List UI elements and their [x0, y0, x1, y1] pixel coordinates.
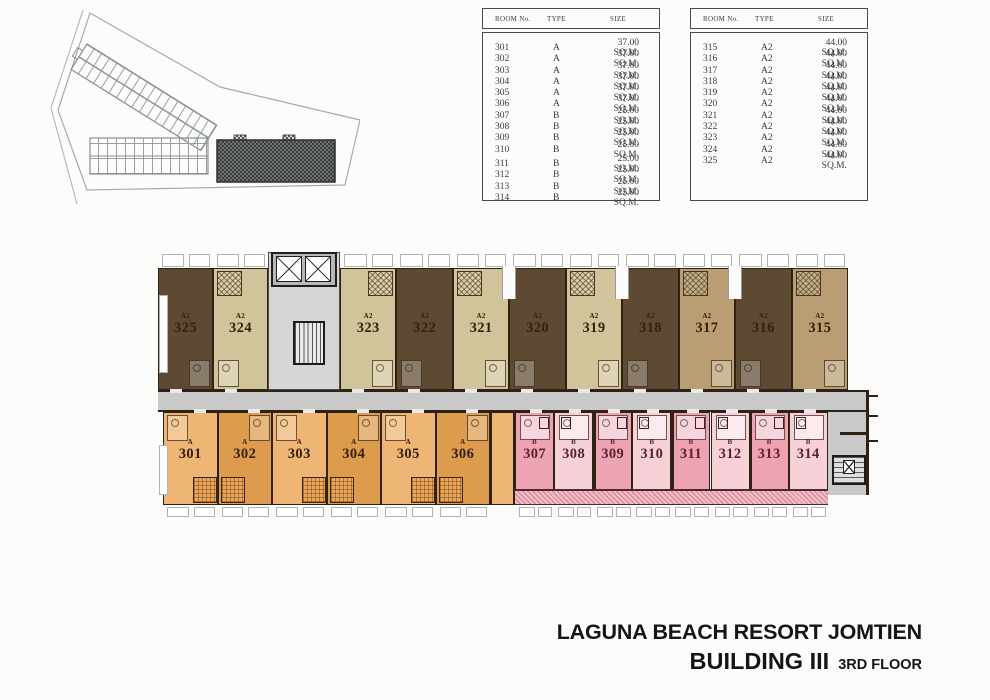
balcony-rail: [466, 507, 487, 517]
room-label-305: A305: [382, 439, 435, 462]
balcony-rail: [597, 507, 613, 517]
room-label-303: A303: [273, 439, 326, 462]
balcony-rail: [440, 507, 462, 517]
room-type: B: [633, 439, 670, 446]
room-type: B: [751, 439, 788, 446]
room-316: A2316: [735, 268, 791, 390]
room-type: A2: [214, 313, 267, 320]
cell-room: 308: [495, 122, 547, 132]
door-gap: [726, 409, 738, 413]
room-type: A2: [510, 313, 564, 320]
cell-room: 314: [495, 193, 547, 203]
room-label-307: B307: [516, 439, 553, 462]
room-number: 317: [680, 321, 734, 336]
bathroom: [276, 415, 297, 441]
shower-box: [796, 417, 806, 429]
door-gap: [225, 389, 237, 393]
cell-room: 318: [703, 77, 755, 87]
room-number: 307: [516, 447, 553, 462]
cell-room: 305: [495, 88, 547, 98]
hatch-box: [570, 271, 595, 296]
room-number: 315: [793, 321, 847, 336]
cell-type: A: [547, 99, 591, 109]
door-gap: [687, 409, 699, 413]
cell-room: 304: [495, 77, 547, 87]
header-size: SIZE: [591, 15, 659, 23]
cell-type: A: [547, 43, 591, 53]
door-gap: [412, 409, 424, 413]
balcony-rail: [626, 254, 649, 267]
room-number: 311: [672, 447, 709, 462]
door-gap: [747, 389, 759, 393]
wall-tick: [869, 415, 878, 417]
cell-size: 25.00 SQ.M.: [591, 188, 659, 208]
balcony-rail: [194, 507, 215, 517]
balcony-rail: [636, 507, 652, 517]
elevator-car-icon: [305, 256, 331, 282]
hatch-box: [217, 271, 242, 296]
balcony-rail: [824, 254, 845, 267]
stair-core-icon: [843, 460, 855, 474]
cell-type: A: [547, 66, 591, 76]
balcony-rail: [772, 507, 787, 517]
room-label-313: B313: [751, 439, 788, 462]
plan-title: LAGUNA BEACH RESORT JOMTIEN BUILDING III…: [557, 620, 922, 675]
cell-type: B: [547, 133, 591, 143]
end-wall: [866, 390, 869, 495]
room-label-315: A2315: [793, 313, 847, 336]
balcony-rail: [457, 254, 480, 267]
door-gap: [765, 409, 777, 413]
shower-box: [539, 417, 549, 429]
room-label-302: A302: [219, 439, 272, 462]
room-306: A306: [436, 412, 491, 505]
door-gap: [303, 409, 315, 413]
legend-table-1: ROOM No. TYPE SIZE 301A37.00 SQ.M.302A37…: [482, 8, 660, 201]
bathroom: [740, 360, 761, 387]
room-302: A302: [218, 412, 273, 505]
room-322: A2322: [396, 268, 452, 390]
wall-tick: [869, 395, 878, 397]
bathroom: [520, 415, 550, 440]
balcony-rail: [796, 254, 819, 267]
balcony-rail: [248, 507, 269, 517]
cell-room: 303: [495, 66, 547, 76]
room-number: 309: [594, 447, 631, 462]
end-wall-stub: [840, 432, 868, 435]
room-type: A: [382, 439, 435, 446]
cell-type: A2: [755, 99, 799, 109]
cell-room: 309: [495, 133, 547, 143]
cell-room: 323: [703, 133, 755, 143]
room-type: A2: [567, 313, 621, 320]
cell-type: A2: [755, 66, 799, 76]
room-label-306: A306: [437, 439, 490, 462]
room-type: A: [328, 439, 381, 446]
bathroom: [385, 415, 406, 441]
room-319: A2319: [566, 268, 622, 390]
room-number: 316: [736, 321, 790, 336]
room-320: A2320: [509, 268, 565, 390]
legend-table-2-body: 315A244.00 SQ.M.316A244.00 SQ.M.317A244.…: [690, 32, 868, 201]
floor-name: 3RD FLOOR: [838, 657, 922, 673]
bathroom: [189, 360, 210, 387]
room-number: 303: [273, 447, 326, 462]
balcony-rail: [428, 254, 449, 267]
header-type: TYPE: [547, 15, 591, 23]
balcony-rail: [616, 507, 631, 517]
balcony-rail: [162, 254, 184, 267]
room-number: 312: [712, 447, 749, 462]
room-number: 313: [751, 447, 788, 462]
hatch-box: [368, 271, 393, 296]
cell-room: 317: [703, 66, 755, 76]
balcony-rail: [276, 507, 298, 517]
room-301: A301: [163, 412, 218, 505]
shower-box: [718, 417, 728, 429]
bathroom: [249, 415, 270, 441]
room-label-320: A2320: [510, 313, 564, 336]
room-number: 319: [567, 321, 621, 336]
legend-table-2-header: ROOM No. TYPE SIZE: [690, 8, 868, 29]
corridor: [158, 390, 868, 412]
cell-room: 322: [703, 122, 755, 132]
balcony-rail: [655, 507, 670, 517]
room-number: 305: [382, 447, 435, 462]
cell-type: A2: [755, 133, 799, 143]
door-gap: [352, 389, 364, 393]
cell-type: A2: [755, 43, 799, 53]
bathroom: [218, 360, 239, 387]
door-gap: [530, 409, 542, 413]
cell-type: B: [547, 170, 591, 180]
room-label-317: A2317: [680, 313, 734, 336]
room-type: B: [712, 439, 749, 446]
room-number: 306: [437, 447, 490, 462]
room-number: 318: [623, 321, 677, 336]
room-315: A2315: [792, 268, 848, 390]
room-type: A: [273, 439, 326, 446]
door-gap: [608, 409, 620, 413]
room-label-321: A2321: [454, 313, 508, 336]
door-gap: [804, 409, 816, 413]
bathroom: [755, 415, 785, 440]
balcony-rail: [558, 507, 574, 517]
room-label-304: A304: [328, 439, 381, 462]
balcony-rail: [412, 507, 433, 517]
balcony-rail: [683, 254, 706, 267]
door-gap: [569, 409, 581, 413]
bathroom: [794, 415, 824, 440]
room-number: 314: [790, 447, 827, 462]
room-number: 324: [214, 321, 267, 336]
balcony-rail: [400, 254, 423, 267]
door-gap: [466, 409, 478, 413]
room-label-324: A2324: [214, 313, 267, 336]
balcony-rail: [331, 507, 353, 517]
room-305: A305: [381, 412, 436, 505]
balcony-rail: [167, 507, 189, 517]
bathroom: [711, 360, 732, 387]
room-number: 322: [397, 321, 451, 336]
shower-box: [774, 417, 784, 429]
room-type: B: [672, 439, 709, 446]
balcony-rail: [811, 507, 826, 517]
door-gap: [691, 389, 703, 393]
balcony-hatch-box: [439, 477, 463, 503]
cell-type: A2: [755, 77, 799, 87]
wall-tick: [869, 440, 878, 442]
balcony-rail: [372, 254, 393, 267]
room-number: 310: [633, 447, 670, 462]
balcony-rail: [570, 254, 593, 267]
building-floor-line: BUILDING III3RD FLOOR: [557, 648, 922, 675]
room-number: 320: [510, 321, 564, 336]
cell-room: 315: [703, 43, 755, 53]
legend-table-1-header: ROOM No. TYPE SIZE: [482, 8, 660, 29]
hatch-box: [796, 271, 821, 296]
hatch-box: [457, 271, 482, 296]
site-building-two: [90, 138, 208, 174]
balcony-rail: [733, 507, 748, 517]
balcony-rail: [675, 507, 691, 517]
cell-room: 316: [703, 54, 755, 64]
bathroom: [676, 415, 706, 440]
bathroom: [401, 360, 422, 387]
shower-box: [639, 417, 649, 429]
cell-type: B: [547, 193, 591, 203]
cell-room: 307: [495, 111, 547, 121]
shower-box: [617, 417, 627, 429]
site-plan-thumbnail: [45, 8, 360, 208]
cell-room: 311: [495, 159, 547, 169]
resort-name: LAGUNA BEACH RESORT JOMTIEN: [557, 620, 922, 645]
cell-room: 306: [495, 99, 547, 109]
cell-type: B: [547, 111, 591, 121]
balcony-rail: [793, 507, 809, 517]
room-type: B: [555, 439, 592, 446]
balcony-rail: [694, 507, 709, 517]
balcony-rail: [357, 507, 378, 517]
room-type: A2: [793, 313, 847, 320]
header-room-no: ROOM No.: [495, 15, 547, 23]
room-321: A2321: [453, 268, 509, 390]
cell-type: A: [547, 54, 591, 64]
balcony-rail: [519, 507, 535, 517]
cell-type: A2: [755, 88, 799, 98]
room-label-310: B310: [633, 439, 670, 462]
bathroom: [467, 415, 488, 441]
cell-type: B: [547, 159, 591, 169]
cell-type: A2: [755, 111, 799, 121]
facade-notch: [728, 266, 742, 299]
room-label-323: A2323: [341, 313, 395, 336]
balcony-rail: [385, 507, 407, 517]
elevator-car-icon: [276, 256, 302, 282]
cell-room: 319: [703, 88, 755, 98]
bathroom: [824, 360, 845, 387]
bathroom: [514, 360, 535, 387]
cell-type: A: [547, 88, 591, 98]
shower-box: [695, 417, 705, 429]
room-type: A2: [397, 313, 451, 320]
room-label-319: A2319: [567, 313, 621, 336]
door-gap: [634, 389, 646, 393]
room-row-311: 311B25.00 SQ.M.: [483, 154, 659, 165]
room-number: 304: [328, 447, 381, 462]
room-type: A2: [736, 313, 790, 320]
balcony-rail: [538, 507, 553, 517]
room-number: 325: [159, 321, 212, 336]
cell-type: A2: [755, 54, 799, 64]
room-label-301: A301: [164, 439, 217, 462]
door-gap: [465, 389, 477, 393]
site-building-three-highlighted: [217, 135, 335, 182]
balcony-hatch-box: [221, 477, 245, 503]
room-label-322: A2322: [397, 313, 451, 336]
balcony-hatch-box: [411, 477, 435, 503]
cell-room: 310: [495, 145, 547, 155]
floor-plan-sheet: ROOM No. TYPE SIZE 301A37.00 SQ.M.302A37…: [0, 0, 990, 700]
cell-type: B: [547, 182, 591, 192]
balcony-rail: [754, 507, 770, 517]
room-type: A: [437, 439, 490, 446]
balcony-rail: [344, 254, 367, 267]
room-number: 321: [454, 321, 508, 336]
door-gap: [578, 389, 590, 393]
bathroom: [716, 415, 746, 440]
facade-notch: [502, 266, 516, 299]
building-name: BUILDING III: [690, 648, 830, 674]
bathroom: [167, 415, 188, 441]
room-label-312: B312: [712, 439, 749, 462]
cell-room: 320: [703, 99, 755, 109]
cell-type: B: [547, 122, 591, 132]
room-number: 308: [555, 447, 592, 462]
balcony-rail: [244, 254, 265, 267]
bathroom: [627, 360, 648, 387]
room-type: A2: [454, 313, 508, 320]
balcony-rail: [513, 254, 536, 267]
bathroom: [637, 415, 667, 440]
room-324: A2324: [213, 268, 268, 390]
balcony-strip: [515, 489, 828, 505]
cell-type: A2: [755, 145, 799, 155]
door-gap: [804, 389, 816, 393]
balcony-hatch-box: [302, 477, 326, 503]
room-type: A2: [623, 313, 677, 320]
room-label-308: B308: [555, 439, 592, 462]
bathroom: [559, 415, 589, 440]
cell-type: A2: [755, 156, 799, 166]
room-label-311: B311: [672, 439, 709, 462]
cell-type: A2: [755, 122, 799, 132]
room-304: A304: [327, 412, 382, 505]
cell-size: 44.00 SQ.M.: [799, 151, 867, 171]
room-type: B: [516, 439, 553, 446]
room-label-314: B314: [790, 439, 827, 462]
floor-plan-drawing: A2325A2324A2323A2322A2321A2320A2319A2318…: [150, 245, 895, 535]
balcony-rail: [303, 507, 324, 517]
header-type: TYPE: [755, 15, 799, 23]
room-number: 301: [164, 447, 217, 462]
cell-room: 324: [703, 145, 755, 155]
cell-room: 313: [495, 182, 547, 192]
room-number: 302: [219, 447, 272, 462]
shower-box: [561, 417, 571, 429]
legend-table-2: ROOM No. TYPE SIZE 315A244.00 SQ.M.316A2…: [690, 8, 868, 201]
door-gap: [170, 389, 182, 393]
bathroom: [485, 360, 506, 387]
balcony-rail: [739, 254, 762, 267]
room-type: A: [219, 439, 272, 446]
door-gap: [194, 409, 206, 413]
balcony-hatch-box: [193, 477, 217, 503]
balcony-rail: [217, 254, 239, 267]
balcony-rail: [715, 507, 731, 517]
door-gap: [521, 389, 533, 393]
header-room-no: ROOM No.: [703, 15, 755, 23]
facade-notch: [615, 266, 629, 299]
cell-room: 302: [495, 54, 547, 64]
balcony-hatch-box: [330, 477, 354, 503]
balcony-rail: [189, 254, 210, 267]
header-size: SIZE: [799, 15, 867, 23]
balcony-rail: [222, 507, 244, 517]
room-type: A: [164, 439, 217, 446]
room-303: A303: [272, 412, 327, 505]
door-gap: [357, 409, 369, 413]
room-type: A2: [341, 313, 395, 320]
room-type: A2: [159, 313, 212, 320]
balcony-rail: [577, 507, 592, 517]
room-type: B: [790, 439, 827, 446]
bathroom: [358, 415, 379, 441]
room-label-325: A2325: [159, 313, 212, 336]
legend-table-1-body: 301A37.00 SQ.M.302A37.00 SQ.M.303A37.00 …: [482, 32, 660, 201]
room-label-309: B309: [594, 439, 631, 462]
site-boundary-outer: [51, 10, 83, 204]
room-row-301: 301A37.00 SQ.M.: [483, 38, 659, 49]
room-318: A2318: [622, 268, 678, 390]
room-type: B: [594, 439, 631, 446]
entry-hall: [490, 412, 515, 505]
door-gap: [647, 409, 659, 413]
room-row-315: 315A244.00 SQ.M.: [691, 38, 867, 49]
door-gap: [248, 409, 260, 413]
door-gap: [408, 389, 420, 393]
bathroom: [598, 415, 628, 440]
balcony-rail: [541, 254, 562, 267]
cell-type: A: [547, 77, 591, 87]
site-building-one: [66, 41, 217, 151]
cell-room: 312: [495, 170, 547, 180]
bathroom: [598, 360, 619, 387]
stairs-icon: [293, 321, 325, 365]
hatch-box: [683, 271, 708, 296]
cell-room: 301: [495, 43, 547, 53]
room-label-316: A2316: [736, 313, 790, 336]
room-type: A2: [680, 313, 734, 320]
cell-room: 325: [703, 156, 755, 166]
cell-type: B: [547, 145, 591, 155]
balcony-rail: [767, 254, 788, 267]
balcony-rail: [654, 254, 675, 267]
room-number: 323: [341, 321, 395, 336]
room-label-318: A2318: [623, 313, 677, 336]
room-317: A2317: [679, 268, 735, 390]
bathroom: [372, 360, 393, 387]
